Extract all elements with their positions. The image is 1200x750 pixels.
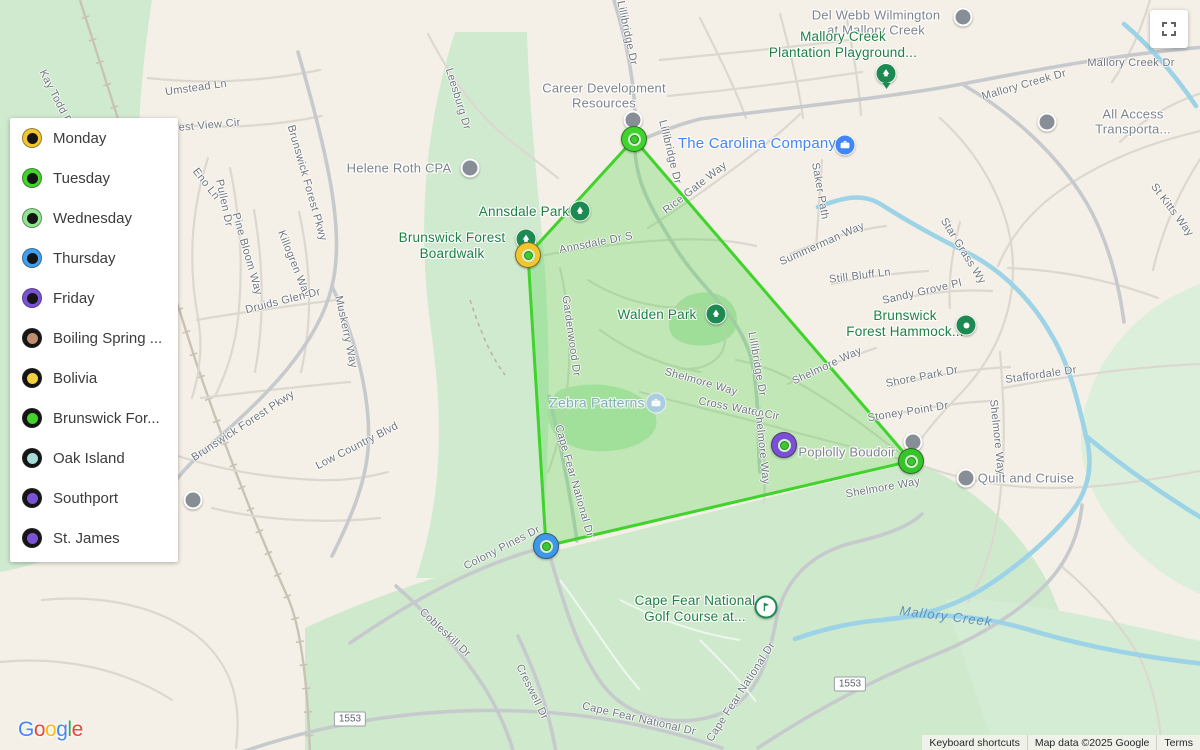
legend-item-friday[interactable]: Friday [10, 278, 178, 318]
legend-item-label: Southport [53, 490, 118, 507]
legend-item-label: Boiling Spring ... [53, 330, 162, 347]
poi-dot-icon [957, 469, 976, 488]
google-logo-letter: o [34, 718, 45, 741]
legend-item-label: St. James [53, 530, 120, 547]
legend-item-southport[interactable]: Southport [10, 478, 178, 518]
legend-item-tuesday[interactable]: Tuesday [10, 158, 178, 198]
legend-marker-center [27, 413, 38, 424]
legend-item-bolivia[interactable]: Bolivia [10, 358, 178, 398]
stop-ring-icon [533, 533, 559, 559]
fullscreen-button[interactable] [1150, 10, 1188, 48]
legend-marker-icon [22, 168, 42, 188]
legend-item-label: Wednesday [53, 210, 132, 227]
legend-item-thursday[interactable]: Thursday [10, 238, 178, 278]
legend-marker-center [27, 533, 38, 544]
briefcase-icon [651, 398, 662, 409]
legend-marker-icon [22, 208, 42, 228]
stop-center-dot [630, 135, 639, 144]
terms-link[interactable]: Terms [1157, 737, 1200, 749]
legend-marker-center [27, 453, 38, 464]
legend-marker-center [27, 213, 38, 224]
stop-ring-icon [621, 126, 647, 152]
stop-ring-mid [905, 455, 918, 468]
stop-ring-mid [628, 133, 641, 146]
legend-marker-center [27, 253, 38, 264]
legend-item-label: Bolivia [53, 370, 97, 387]
legend-item-wednesday[interactable]: Wednesday [10, 198, 178, 238]
map-canvas[interactable]: Career Development ResourcesHelene Roth … [0, 0, 1200, 750]
marker-zebra-patterns[interactable] [646, 393, 667, 414]
legend-marker-icon [22, 528, 42, 548]
marker-stop-tuesday-top[interactable] [621, 126, 647, 152]
google-logo-letter: o [45, 718, 56, 741]
legend-marker-icon [22, 128, 42, 148]
marker-forest-hammock[interactable] [956, 315, 977, 336]
stop-ring-mid [778, 439, 791, 452]
pin-tail [882, 83, 890, 89]
legend-item-label: Thursday [53, 250, 116, 267]
legend-item-label: Oak Island [53, 450, 125, 467]
stop-ring-icon [898, 448, 924, 474]
legend-marker-icon [22, 328, 42, 348]
stop-center-dot [542, 542, 551, 551]
legend-marker-center [27, 333, 38, 344]
park-dot-icon [956, 315, 977, 336]
legend-item-monday[interactable]: Monday [10, 118, 178, 158]
tree-icon [575, 206, 586, 217]
legend-marker-center [27, 493, 38, 504]
legend-marker-icon [22, 248, 42, 268]
google-logo-letter: e [72, 718, 83, 741]
legend-item-label: Monday [53, 130, 106, 147]
marker-stop-monday-left[interactable] [515, 242, 541, 268]
tree-icon [711, 309, 722, 320]
legend-marker-center [27, 173, 38, 184]
legend-marker-center [27, 293, 38, 304]
google-logo[interactable]: Google [18, 718, 83, 742]
marker-playground[interactable] [876, 63, 897, 84]
keyboard-shortcuts-link[interactable]: Keyboard shortcuts [922, 737, 1026, 749]
park-tree-icon [706, 304, 727, 325]
poi-dot-icon [461, 159, 480, 178]
marker-stop-right[interactable] [898, 448, 924, 474]
legend-marker-center [27, 133, 38, 144]
legend-marker-center [27, 373, 38, 384]
legend-marker-icon [22, 488, 42, 508]
marker-del-webb[interactable] [954, 8, 973, 27]
poi-dot-icon [184, 491, 203, 510]
marker-stop-friday[interactable] [771, 432, 797, 458]
park-tree-icon [570, 201, 591, 222]
marker-golf-course[interactable] [755, 596, 778, 619]
fullscreen-icon [1161, 21, 1177, 37]
marker-annsdale-park[interactable] [570, 201, 591, 222]
legend-item-label: Friday [53, 290, 95, 307]
stop-center-dot [780, 441, 789, 450]
map-data-text: Map data ©2025 Google [1028, 737, 1157, 749]
marker-carolina-company[interactable] [835, 135, 856, 156]
legend-item-label: Tuesday [53, 170, 110, 187]
legend-marker-icon [22, 288, 42, 308]
legend-marker-icon [22, 448, 42, 468]
google-logo-letter: g [56, 718, 67, 741]
legend-item-brunswick-for[interactable]: Brunswick For... [10, 398, 178, 438]
stop-ring-icon [515, 242, 541, 268]
business-icon [835, 135, 856, 156]
stop-center-dot [907, 457, 916, 466]
poi-dot-icon [1038, 113, 1057, 132]
stop-ring-mid [522, 249, 535, 262]
legend-item-oak-island[interactable]: Oak Island [10, 438, 178, 478]
legend-panel: MondayTuesdayWednesdayThursdayFridayBoil… [10, 118, 178, 562]
google-logo-letter: G [18, 718, 34, 741]
marker-walden-park[interactable] [706, 304, 727, 325]
stop-center-dot [524, 251, 533, 260]
poi-dot-icon [954, 8, 973, 27]
marker-edge-poi[interactable] [184, 491, 203, 510]
legend-marker-icon [22, 368, 42, 388]
stop-ring-icon [771, 432, 797, 458]
marker-quilt-cruise[interactable] [957, 469, 976, 488]
attribution-bar: Keyboard shortcuts Map data ©2025 Google… [922, 735, 1200, 750]
map-markers-layer [0, 0, 1200, 750]
stop-ring-mid [540, 540, 553, 553]
legend-marker-icon [22, 408, 42, 428]
marker-all-access[interactable] [1038, 113, 1057, 132]
business-muted-icon [646, 393, 667, 414]
golf-icon [755, 596, 778, 619]
legend-item-st-james[interactable]: St. James [10, 518, 178, 558]
legend-item-boiling-spring[interactable]: Boiling Spring ... [10, 318, 178, 358]
legend-item-label: Brunswick For... [53, 410, 160, 427]
playground-pin-icon [876, 63, 897, 84]
golf-flag-icon [761, 602, 772, 613]
tree-icon [881, 68, 892, 79]
marker-helene-roth[interactable] [461, 159, 480, 178]
marker-stop-thursday-bottom[interactable] [533, 533, 559, 559]
briefcase-icon [840, 140, 851, 151]
